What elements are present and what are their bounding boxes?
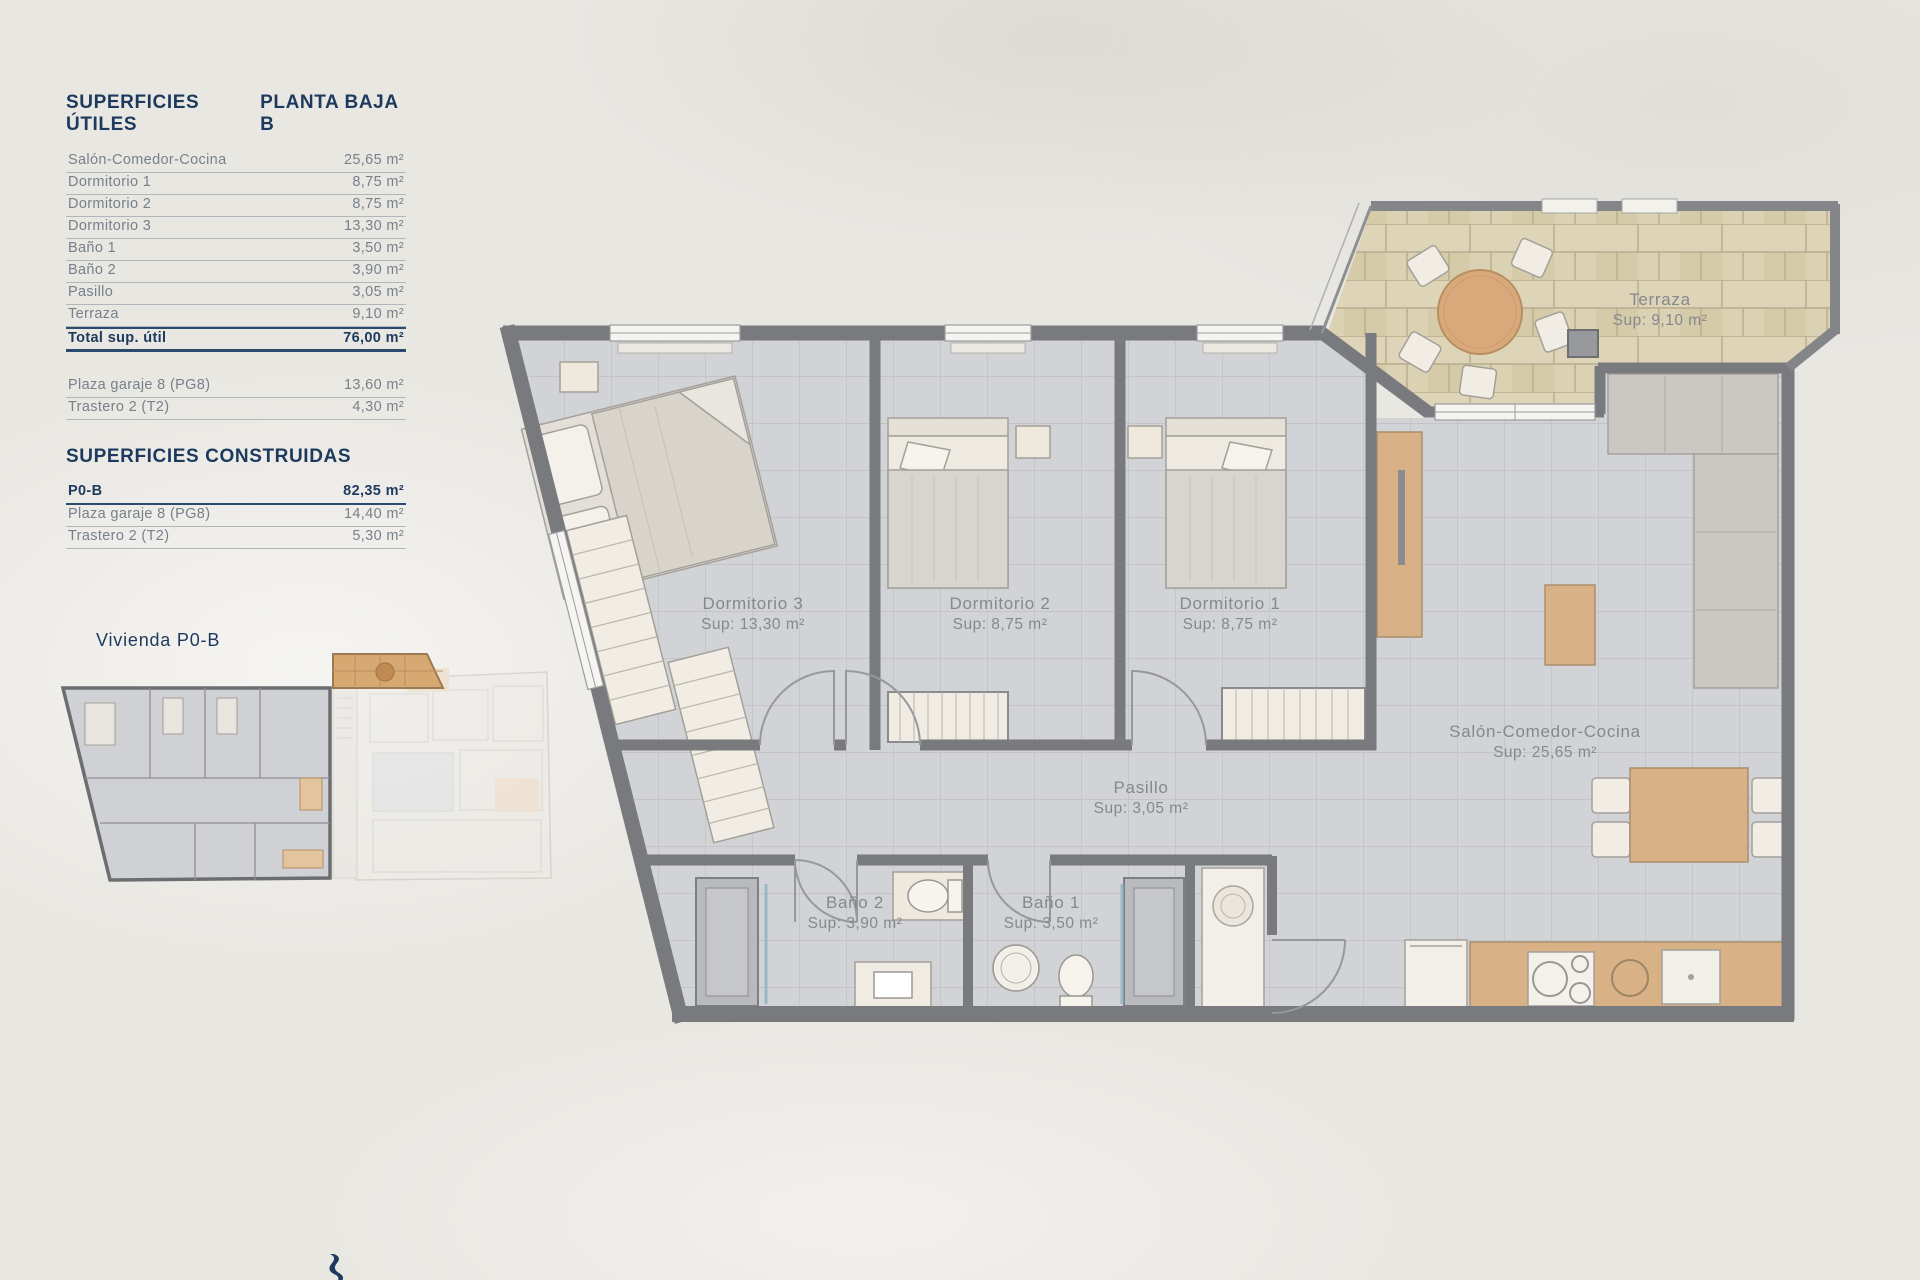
dining-chair	[1592, 778, 1630, 813]
kitchen-counter	[1405, 940, 1786, 1008]
terrace-table	[1438, 270, 1522, 354]
floor-plan	[0, 0, 1920, 1280]
terrace-pillar	[1568, 330, 1598, 357]
logo-mark	[329, 1254, 343, 1280]
sofa-right	[1694, 454, 1778, 688]
utility-washer	[1202, 868, 1264, 1008]
dining-table	[1630, 768, 1748, 862]
dining-chair	[1592, 822, 1630, 857]
kitchen-island	[1545, 585, 1595, 665]
floorplan-page: { "colors": { "accent_navy": "#1d3a5e", …	[0, 0, 1920, 1280]
sofa-top	[1608, 374, 1778, 454]
